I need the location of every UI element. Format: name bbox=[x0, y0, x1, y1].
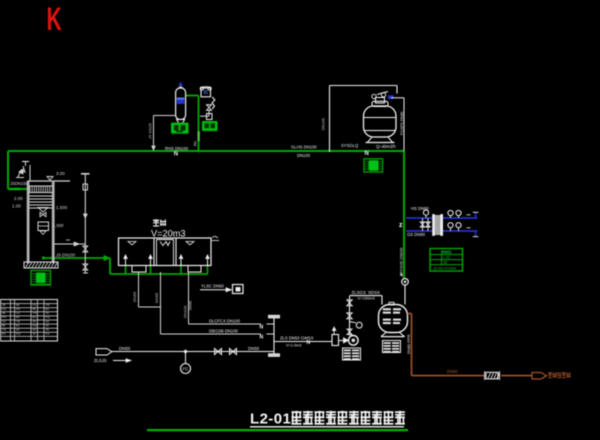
svg-text:DN80 PPR: DN80 PPR bbox=[406, 334, 411, 354]
svg-text:1.500: 1.500 bbox=[53, 223, 64, 228]
svg-text:z: z bbox=[399, 222, 403, 229]
svg-text:N: N bbox=[174, 152, 178, 158]
svg-text:L-02: L-02 bbox=[443, 256, 450, 260]
svg-text:3.00: 3.00 bbox=[56, 171, 65, 176]
svg-text:FC: FC bbox=[183, 367, 189, 372]
svg-text:V=1.0m3: V=1.0m3 bbox=[286, 343, 301, 347]
svg-text:0.000: 0.000 bbox=[10, 187, 21, 192]
svg-text:N: N bbox=[307, 340, 311, 346]
svg-text:JS DN100: JS DN100 bbox=[56, 253, 76, 258]
svg-text:DN50: DN50 bbox=[248, 346, 260, 351]
svg-text:SYSGLQ: SYSGLQ bbox=[341, 143, 359, 148]
svg-text:YLSC DN50: YLSC DN50 bbox=[201, 284, 224, 289]
svg-text:JY DN25: JY DN25 bbox=[148, 122, 153, 139]
svg-text:DLCFCX DN100: DLCFCX DN100 bbox=[209, 319, 241, 324]
svg-text:DN50: DN50 bbox=[197, 131, 201, 141]
svg-text:FCXPS DN80: FCXPS DN80 bbox=[400, 112, 404, 135]
svg-text:RHS DN100: RHS DN100 bbox=[165, 146, 189, 151]
svg-text:ZLSJS: ZLSJS bbox=[94, 358, 107, 363]
svg-text:1.500: 1.500 bbox=[56, 205, 68, 210]
svg-text:JWYXHS DN100: JWYXHS DN100 bbox=[398, 247, 403, 277]
svg-text:DN100: DN100 bbox=[183, 305, 188, 318]
svg-text:BWG: BWG bbox=[441, 249, 452, 254]
svg-text:DN80: DN80 bbox=[189, 301, 193, 310]
svg-text:DN65: DN65 bbox=[132, 291, 137, 302]
svg-text:HS DN80: HS DN80 bbox=[411, 206, 429, 211]
svg-text:XDSX: XDSX bbox=[368, 290, 380, 295]
svg-text:1.00: 1.00 bbox=[12, 204, 21, 209]
svg-text:N: N bbox=[365, 151, 369, 157]
svg-text:DN100: DN100 bbox=[297, 153, 311, 158]
svg-text:JSDN150: JSDN150 bbox=[10, 181, 29, 186]
svg-text:2.00: 2.00 bbox=[14, 196, 23, 201]
svg-text:DBGSB DN100: DBGSB DN100 bbox=[209, 329, 239, 334]
svg-text:GS DN80: GS DN80 bbox=[407, 232, 426, 237]
svg-text:DN65: DN65 bbox=[154, 292, 159, 303]
svg-text:35: 35 bbox=[443, 261, 447, 265]
svg-text:PH: PH bbox=[193, 141, 197, 146]
svg-text:Q=40m3/h: Q=40m3/h bbox=[376, 144, 396, 149]
svg-text:DN50: DN50 bbox=[119, 346, 131, 351]
svg-text:GLHS DN100: GLHS DN100 bbox=[291, 145, 317, 150]
svg-text:L2-01: L2-01 bbox=[250, 411, 291, 428]
svg-text:K: K bbox=[47, 0, 63, 37]
svg-text:N: N bbox=[260, 335, 264, 341]
svg-text:G1: G1 bbox=[46, 332, 50, 336]
svg-text:V=150m3: V=150m3 bbox=[358, 296, 376, 301]
svg-text:ZLSGS: ZLSGS bbox=[352, 290, 366, 295]
svg-text:Q=40 H=20m: Q=40 H=20m bbox=[434, 266, 457, 270]
svg-text:DN100: DN100 bbox=[322, 118, 326, 130]
svg-text:32: 32 bbox=[33, 332, 37, 336]
svg-text:KQ: KQ bbox=[16, 332, 21, 336]
svg-text:E1: E1 bbox=[2, 332, 6, 336]
svg-text:N: N bbox=[260, 325, 264, 331]
svg-text:DN80: DN80 bbox=[447, 369, 458, 374]
svg-text:V=20m3: V=20m3 bbox=[151, 229, 185, 239]
